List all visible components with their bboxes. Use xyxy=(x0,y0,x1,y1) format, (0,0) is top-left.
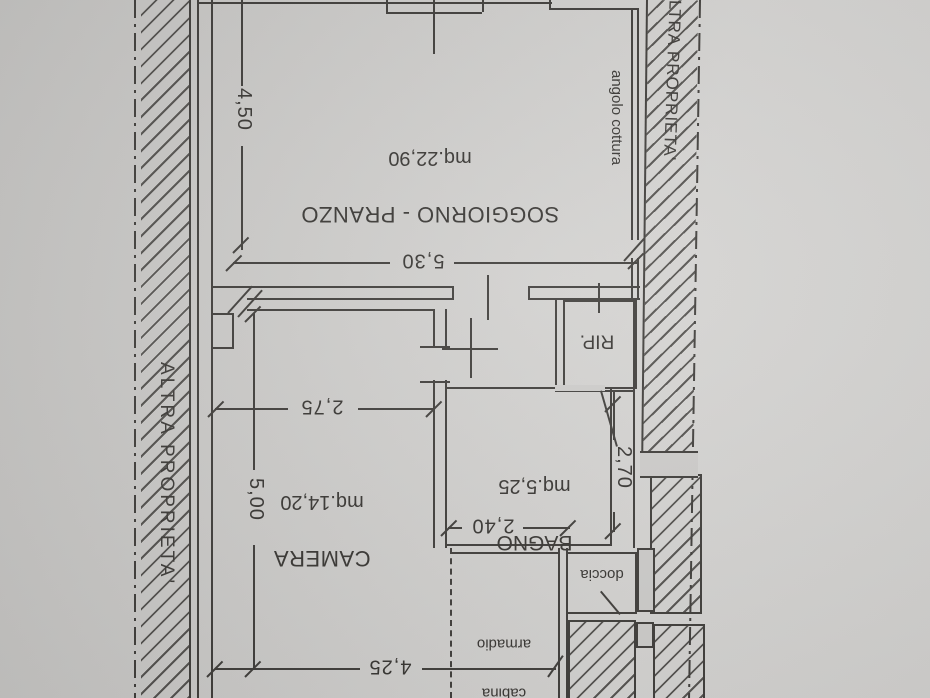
bagno-area: mq.5,25 xyxy=(462,475,607,497)
wall-mid-upper-b xyxy=(528,286,640,288)
bagno-window xyxy=(640,451,698,478)
masonry-block-bottom-left xyxy=(568,620,636,698)
room-label-cabina: cabina armadio xyxy=(458,603,550,698)
dim-275-line-b xyxy=(358,408,433,410)
wall-top xyxy=(197,2,552,4)
wall-top-right xyxy=(549,8,637,10)
dim-425-text: 4,25 xyxy=(359,655,421,677)
wall-vestibule-rip xyxy=(555,298,557,390)
camera-area: mq.14,20 xyxy=(247,491,397,513)
soggiorno-name: SOGGIORNO - PRANZO xyxy=(290,203,570,227)
floor-plan-photo: ALTRA PROPRIETA' ALTRA PROPRIETA' SOGGIO… xyxy=(0,0,930,698)
entrance-slash-2 xyxy=(237,290,263,318)
room-label-angolo-cottura: angolo cottura xyxy=(608,70,624,190)
dim-240-text: 2,40 xyxy=(462,514,524,536)
wall-doccia-bottom xyxy=(566,612,637,614)
wall-left-outer xyxy=(197,0,199,698)
opening-jamb-left xyxy=(452,286,454,300)
wall-corner-up xyxy=(549,0,551,8)
dim-425-line-a xyxy=(215,668,360,670)
wall-right-soggiorno-outer xyxy=(631,8,633,240)
wall-right-soggiorno-inner-low xyxy=(637,258,639,298)
rip-window-axis xyxy=(598,283,600,313)
opening-jamb-right xyxy=(528,286,530,300)
dim-530-line-b xyxy=(454,262,637,264)
wall-right-soggiorno-inner xyxy=(637,8,639,240)
wall-camera-top xyxy=(247,309,433,311)
opening-slash-right-wall xyxy=(623,238,645,262)
room-label-doccia: doccia xyxy=(570,566,634,582)
door-axis-vestibule xyxy=(487,275,489,320)
dim-240-line-b xyxy=(523,527,570,529)
window-jamb-left xyxy=(386,0,388,12)
dim-275-line-a xyxy=(215,408,288,410)
wall-doccia-top xyxy=(566,552,637,554)
hatch-band-right-middle xyxy=(650,474,702,614)
dim-500-line-a xyxy=(253,313,255,470)
wall-left-inner xyxy=(211,0,213,698)
dim-450-line-a xyxy=(241,0,243,86)
wall-below-bagno xyxy=(450,552,560,554)
window-sill-top xyxy=(386,12,482,14)
wall-left-step-bottom xyxy=(211,347,234,349)
bagno-door-gap xyxy=(555,385,605,391)
wall-mid-upper-a xyxy=(211,286,452,288)
dim-530-line-a xyxy=(233,262,390,264)
camera-name: CAMERA xyxy=(247,547,397,571)
camera-door-jamb-bottom xyxy=(420,381,450,383)
dim-450-line-b xyxy=(241,146,243,250)
dim-270-text: 2,70 xyxy=(612,446,634,502)
wall-left-step-top xyxy=(211,313,234,315)
hatch-band-right-lower xyxy=(653,624,705,698)
dim-500-text: 5,00 xyxy=(244,478,266,536)
window-jamb-bottom xyxy=(636,622,654,648)
cabina-dashed-boundary xyxy=(450,548,452,698)
wall-camera-right-a1 xyxy=(433,309,435,347)
dim-500-line-b xyxy=(253,545,255,668)
soggiorno-area: mq.22,90 xyxy=(290,147,570,169)
vestibule-cross-h xyxy=(442,348,498,350)
property-boundary-dashdot-left xyxy=(134,0,136,698)
wall-mid-lower-a xyxy=(247,298,452,300)
dim-450-text: 4,50 xyxy=(232,88,254,146)
cabina-line1: cabina xyxy=(458,684,550,698)
wall-left-step-side xyxy=(232,313,234,349)
property-label-left: ALTRA PROPRIETA' xyxy=(155,362,176,662)
window-axis-top xyxy=(433,0,435,54)
room-label-soggiorno: SOGGIORNO - PRANZO mq.22,90 xyxy=(290,112,570,261)
room-label-camera: CAMERA mq.14,20 xyxy=(247,456,397,605)
window-jamb-right xyxy=(482,0,484,12)
wall-right-lower xyxy=(633,298,635,548)
wall-camera-right-a2 xyxy=(445,309,447,347)
dim-275-text: 2,75 xyxy=(291,395,353,417)
wall-cabina-right-1 xyxy=(558,548,560,698)
room-label-rip: RIP. xyxy=(567,330,627,351)
doccia-window xyxy=(637,548,655,612)
cabina-line2: armadio xyxy=(458,635,550,651)
dim-530-text: 5,30 xyxy=(392,249,454,271)
